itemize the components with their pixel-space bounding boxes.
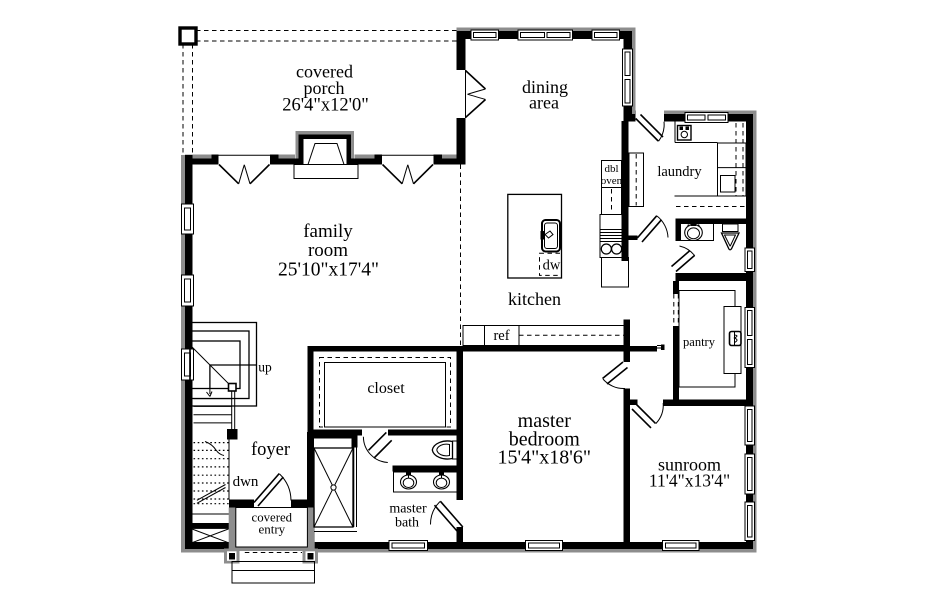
svg-text:dwn: dwn (233, 474, 259, 490)
svg-text:family: family (303, 221, 353, 242)
svg-text:area: area (529, 93, 559, 113)
svg-text:11'4"x13'4": 11'4"x13'4" (649, 471, 730, 491)
svg-text:pantry: pantry (683, 335, 716, 349)
svg-text:closet: closet (367, 380, 405, 397)
svg-text:dbl: dbl (604, 163, 618, 175)
svg-text:up: up (258, 360, 272, 375)
svg-text:foyer: foyer (251, 440, 290, 460)
svg-text:bath: bath (395, 516, 419, 531)
svg-text:master: master (389, 502, 427, 517)
svg-text:dw: dw (543, 258, 561, 274)
svg-text:ref: ref (493, 328, 509, 344)
svg-text:26'4"x12'0": 26'4"x12'0" (282, 96, 369, 116)
svg-text:25'10"x17'4": 25'10"x17'4" (278, 260, 379, 281)
svg-text:oven: oven (601, 175, 623, 187)
svg-text:laundry: laundry (657, 164, 702, 180)
svg-text:entry: entry (258, 522, 285, 537)
svg-text:15'4"x18'6": 15'4"x18'6" (498, 447, 592, 469)
svg-text:kitchen: kitchen (508, 289, 561, 309)
svg-text:room: room (308, 240, 348, 261)
